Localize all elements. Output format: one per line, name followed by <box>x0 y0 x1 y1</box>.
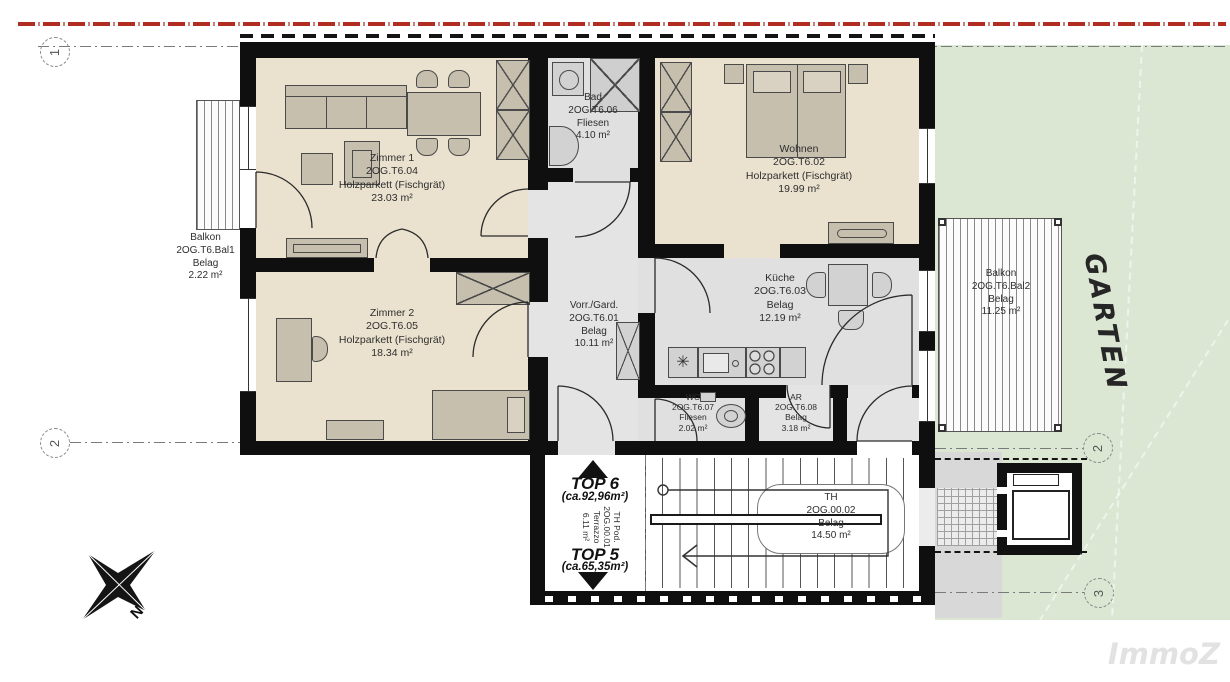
section-dashes-bottom <box>530 596 935 602</box>
room-area: 12.19 m² <box>690 312 870 325</box>
section-marker-2-left: 2 <box>40 428 70 458</box>
dining-table <box>407 92 481 136</box>
wardrobe-zimmer1 <box>496 60 530 110</box>
stove <box>746 347 780 378</box>
balcony-post <box>1054 424 1062 432</box>
window-left-balcony <box>240 106 256 170</box>
room-label-treppenhaus: TH 2OG.00.02 Belag 14.50 m² <box>770 492 892 543</box>
door-gap-balcony1 <box>240 170 256 228</box>
door-gap-zimmer2 <box>528 302 548 357</box>
room-floor: Fliesen <box>543 118 643 131</box>
room-name: TH <box>770 492 892 505</box>
kitchen-counter-star: ✳ <box>668 347 698 378</box>
room-area: 23.03 m² <box>292 192 492 205</box>
wardrobe-zimmer2 <box>456 272 530 305</box>
room-floor: Holzparkett (Fischgrät) <box>699 170 899 183</box>
room-label-balkon1: Balkon 2OG.T6.Bal1 Belag 2.22 m² <box>158 232 253 283</box>
sofa-back-line <box>286 86 406 97</box>
room-name: Balkon <box>952 268 1050 281</box>
room-name: Bad <box>543 92 643 105</box>
room-label-zimmer2: Zimmer 2 2OG.T6.05 Holzparkett (Fischgrä… <box>292 307 492 361</box>
window-right-wohnen <box>919 128 935 184</box>
room-area: 11.25 m² <box>952 306 1050 319</box>
room-area: 14.50 m² <box>770 530 892 543</box>
wardrobe-wohnen <box>660 112 692 162</box>
room-label-bad: Bad 2OG.T6.06 Fliesen 4.10 m² <box>543 92 643 143</box>
room-label-wc: WC 2OG.T6.07 Fliesen 2.02 m² <box>648 392 738 433</box>
door-gap-hall-stairs <box>857 441 912 455</box>
dining-chair <box>448 70 470 88</box>
sofa-divider <box>326 97 327 128</box>
balcony-post <box>1054 218 1062 226</box>
marker-number: 2 <box>47 439 62 446</box>
door-gap-wohnen-kueche <box>724 244 780 258</box>
room-code: 2OG.T6.06 <box>543 105 643 118</box>
room-floor: Belag <box>690 299 870 312</box>
room-floor: Holzparkett (Fischgrät) <box>292 334 492 347</box>
lobby-stairs-divider <box>645 455 646 591</box>
marker-number: 2 <box>1090 444 1105 451</box>
wall-h-wohnen-kueche <box>655 244 919 258</box>
room-code: 2OG.T6.03 <box>690 285 870 298</box>
window-right-kueche <box>919 350 935 422</box>
property-line-left-bottom <box>70 442 240 443</box>
room-floor: Belag <box>757 412 835 422</box>
kitchen-counter <box>780 347 806 378</box>
room-area: 10.11 m² <box>546 338 642 351</box>
sofa-divider <box>366 97 367 128</box>
room-code: 2OG.T6.Bal2 <box>952 281 1050 294</box>
room-name: Vorr./Gard. <box>546 300 642 313</box>
room-floor: Belag <box>546 326 642 339</box>
room-label-wohnen: Wohnen 2OG.T6.02 Holzparkett (Fischgrät)… <box>699 143 899 197</box>
sink-basin <box>703 353 729 373</box>
room-area: 19.99 m² <box>699 183 899 196</box>
nightstand <box>724 64 744 84</box>
window-right-balcony-door <box>919 270 935 332</box>
sink-tap <box>732 360 739 367</box>
wardrobe-zimmer1 <box>496 110 530 160</box>
pillow <box>753 71 791 93</box>
direction-arrow-down <box>578 572 608 590</box>
door-gap-hall-kueche <box>848 385 912 398</box>
door-gap-zimmer1 <box>528 190 548 238</box>
room-area: 18.34 m² <box>292 347 492 360</box>
room-name: Wohnen <box>699 143 899 156</box>
room-area: 2.22 m² <box>158 270 253 283</box>
room-name: Balkon <box>158 232 253 245</box>
wall-stair-left <box>530 455 545 605</box>
nightstand <box>848 64 868 84</box>
kitchen-sink-counter <box>698 347 746 378</box>
room-floor: Holzparkett (Fischgrät) <box>292 179 492 192</box>
room-code: 2OG.T6.05 <box>292 320 492 333</box>
washer-drum <box>559 70 579 90</box>
balcony-post <box>938 424 946 432</box>
room-floor: Belag <box>770 518 892 531</box>
property-line-right-bottom <box>935 592 1084 593</box>
elevator-door-tick <box>997 487 1007 494</box>
marker-number: 3 <box>1091 589 1106 596</box>
room-code: 2OG.T6.02 <box>699 156 899 169</box>
pillow <box>507 397 525 433</box>
sideboard-inner <box>837 229 887 238</box>
room-label-zimmer1: Zimmer 1 2OG.T6.04 Holzparkett (Fischgrä… <box>292 152 492 206</box>
pillow <box>803 71 841 93</box>
sideboard-zimmer2 <box>326 420 384 440</box>
door-gap-zimmer1-zimmer2 <box>374 258 430 272</box>
room-area: 4.10 m² <box>543 130 643 143</box>
floor-plan: ✳ TOP 6 (ca.92,96m²) TH Pod. 2OG.00.01 T… <box>0 0 1230 682</box>
room-floor: Belag <box>952 294 1050 307</box>
marker-number: 1 <box>47 48 62 55</box>
room-name: Küche <box>690 272 870 285</box>
room-area: 3.18 m² <box>757 423 835 433</box>
elevator-car <box>1012 490 1070 540</box>
sideboard-wohnen <box>828 222 894 244</box>
roof-outline-dashes <box>240 34 935 38</box>
boundary-red-line <box>18 22 1226 26</box>
door-gap-entry-top6 <box>558 441 615 455</box>
room-code: 2OG.00.02 <box>770 505 892 518</box>
door-gap-bad <box>573 168 630 182</box>
compass-north-label: N <box>127 595 154 623</box>
room-label-balkon2: Balkon 2OG.T6.Bal2 Belag 11.25 m² <box>952 268 1050 319</box>
wall-v-ar-hall <box>833 385 847 441</box>
balcony-post <box>938 218 946 226</box>
room-name: Zimmer 2 <box>292 307 492 320</box>
balcony-right-deck <box>938 218 1062 432</box>
washing-machine <box>552 62 584 96</box>
wardrobe-wohnen <box>660 62 692 112</box>
room-floor: Belag <box>158 258 253 271</box>
room-name: AR <box>757 392 835 402</box>
sideboard-zimmer1 <box>286 238 368 258</box>
property-line-right-mid <box>935 448 1083 449</box>
floor-hall <box>847 398 919 441</box>
window-left-zimmer2 <box>240 298 256 392</box>
room-area: 2.02 m² <box>648 423 738 433</box>
door-gap-stairs-exit <box>919 488 935 546</box>
room-label-kueche: Küche 2OG.T6.03 Belag 12.19 m² <box>690 272 870 326</box>
section-marker-1: 1 <box>40 37 70 67</box>
room-label-ar: AR 2OG.T6.08 Belag 3.18 m² <box>757 392 835 433</box>
room-floor: Fliesen <box>648 412 738 422</box>
room-code: 2OG.T6.08 <box>757 402 835 412</box>
sofa <box>285 85 407 129</box>
section-marker-3: 3 <box>1084 578 1114 608</box>
balcony-left-deck <box>196 100 240 230</box>
watermark: ImmoZ <box>1105 637 1220 671</box>
elevator-counterweight <box>1013 474 1059 486</box>
room-label-vorraum: Vorr./Gard. 2OG.T6.01 Belag 10.11 m² <box>546 300 642 351</box>
sideboard-inner <box>293 244 361 253</box>
section-marker-2-right: 2 <box>1083 433 1113 463</box>
room-name: Zimmer 1 <box>292 152 492 165</box>
walkway-grid <box>937 488 999 546</box>
room-code: 2OG.T6.01 <box>546 313 642 326</box>
bed-zimmer2 <box>432 390 530 440</box>
kitchen-star-symbol: ✳ <box>676 354 689 371</box>
room-code: 2OG.T6.Bal1 <box>158 245 253 258</box>
dining-chair <box>416 70 438 88</box>
room-code: 2OG.T6.07 <box>648 402 738 412</box>
wall-top <box>240 42 935 58</box>
terrace-dash-bottom <box>935 551 1087 553</box>
room-code: 2OG.T6.04 <box>292 165 492 178</box>
elevator-door-tick <box>997 530 1007 537</box>
terrace-dash-top <box>935 458 1087 460</box>
room-name: WC <box>648 392 738 402</box>
